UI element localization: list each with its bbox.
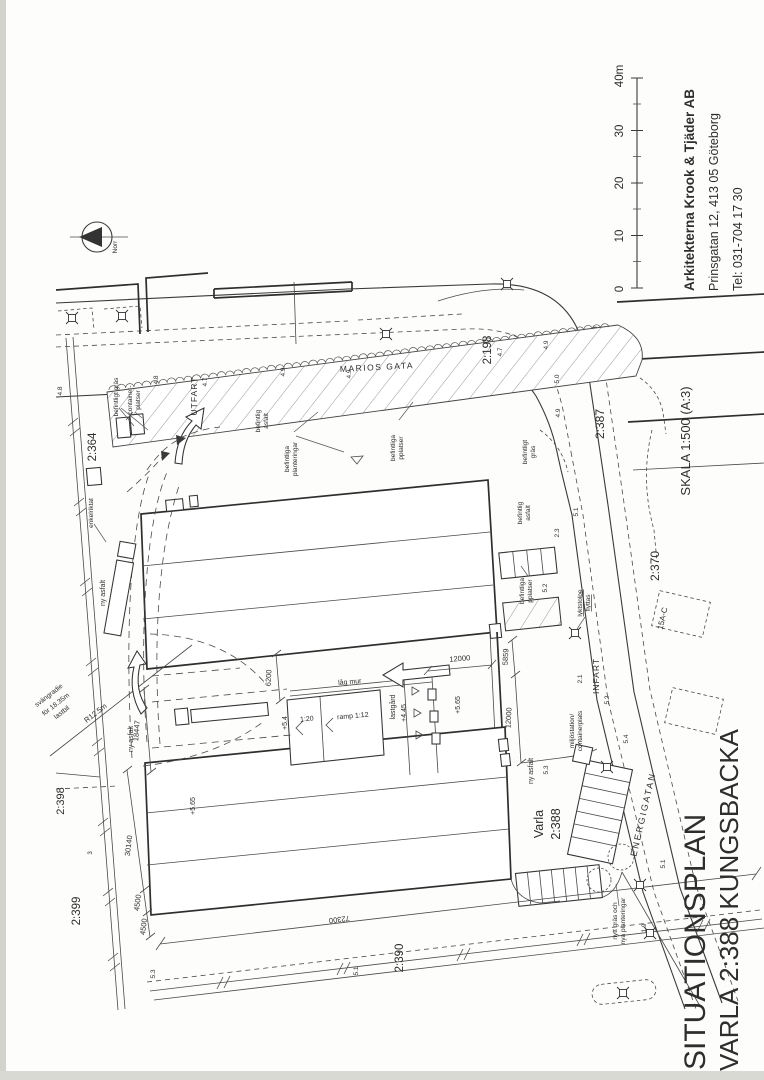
note-ny-asfalt-3: ny asfalt xyxy=(528,758,535,784)
note-befintligt-gras-2b: gräs xyxy=(530,445,537,458)
parcel-2370: 2:370 xyxy=(648,551,662,581)
ramp xyxy=(287,690,384,765)
note-container-2: platser xyxy=(135,389,142,409)
parcel-varla-1: Varla xyxy=(532,810,546,838)
spot-47a: 4.7 xyxy=(202,377,209,386)
level-565-b: +5.65 xyxy=(190,797,197,815)
spot-19: 1.9 xyxy=(641,923,648,932)
title-line2: VARLA 2:388 KUNGSBACKA xyxy=(714,728,744,1071)
spot-47b: 4.7 xyxy=(497,347,504,356)
firm-address: Prinsgatan 12, 413 05 Göteborg xyxy=(707,113,721,291)
spot-48b: 4.8 xyxy=(57,386,64,395)
parcel-2390: 2:390 xyxy=(394,944,406,973)
scalebar-20: 20 xyxy=(614,177,626,190)
site-plan-canvas: Arkitekterna Krook & Tjäder ABPrinsgatan… xyxy=(0,0,764,1080)
spot-21: 2.1 xyxy=(577,674,584,683)
note-slope-120: 1:20 xyxy=(300,715,314,723)
north-label: Norr xyxy=(112,240,119,253)
note-bef-plant-1a: befintliga xyxy=(284,446,291,472)
spot-51c: 5.1 xyxy=(660,859,667,868)
scalebar-0: 0 xyxy=(614,286,626,292)
note-bef-pplatser-2a: befintliga xyxy=(519,578,526,604)
dim-5859: 5859 xyxy=(501,648,511,665)
note-befintligt-gras-2a: befintligt xyxy=(522,440,529,464)
parcel-2399: 2:399 xyxy=(71,897,83,926)
note-miljostation-2: containerplats xyxy=(577,710,584,751)
parcel-2387: 2:387 xyxy=(593,409,607,439)
note-bef-pplatser-2b: pplatser xyxy=(527,579,534,603)
spot-53b: 5.3 xyxy=(150,969,157,978)
spot-51b: 5.1 xyxy=(353,966,360,975)
scalebar-10: 10 xyxy=(614,230,626,243)
note-bef-asfalt-2a: befintlig xyxy=(517,501,524,524)
parcel-2198: 2:198 xyxy=(482,336,494,365)
spot-52b: 5.2 xyxy=(604,695,611,704)
note-enkelriktat: enkelriktat xyxy=(88,498,95,528)
scalebar-30: 30 xyxy=(614,125,626,138)
spot-54: 5.4 xyxy=(623,734,630,743)
note-bef-pplatser-1b: pplatser xyxy=(398,436,405,460)
scan-edge-left xyxy=(0,0,6,1080)
note-nytt-gras-2: nya planteringar xyxy=(620,897,627,944)
spot-53a: 5.3 xyxy=(543,765,550,774)
note-bef-asfalt-1a: befintlig xyxy=(255,409,262,432)
level-54: +5.4 xyxy=(282,716,289,730)
note-lastgard: lastgård xyxy=(389,694,397,719)
label-utfart: UTFART xyxy=(189,377,199,416)
level-565-a: +5.65 xyxy=(455,696,462,714)
note-ny-asfalt-1: ny asfalt xyxy=(100,580,107,606)
note-bef-pplatser-1a: befintliga xyxy=(390,435,397,461)
parcel-2364: 2:364 xyxy=(87,432,99,461)
note-bef-asfalt-1b: asfalt xyxy=(263,413,270,429)
spot-50: 5.0 xyxy=(554,374,561,383)
spot-49c: 4.9 xyxy=(543,340,550,349)
note-nytt-gras-1: nytt gräs och xyxy=(612,902,619,940)
note-miljostation-1: miljöstation/ xyxy=(569,714,576,749)
parcel-2398: 2:398 xyxy=(55,787,67,815)
title-line1: SITUATIONSPLAN xyxy=(679,814,712,1070)
spot-49b: 4.9 xyxy=(346,369,353,378)
spot-52a: 5.2 xyxy=(542,583,549,592)
spot-51a: 5.1 xyxy=(573,507,580,516)
note-lyktstolpe-1: lyktstolpe xyxy=(577,589,584,616)
firm-phone: Tel: 031-704 17 30 xyxy=(731,187,745,291)
note-lyktstolpe-2: flyttas xyxy=(585,594,592,612)
scale-note: SKALA 1:500 (A:3) xyxy=(678,386,693,495)
note-befintligt-gras-1: befintligt gräs xyxy=(113,377,120,416)
dim-6200: 6200 xyxy=(264,669,274,686)
note-container-1: container- xyxy=(127,386,134,415)
scan-edge-bottom xyxy=(0,1071,764,1080)
dim-12000-h: 12000 xyxy=(449,653,471,664)
note-bef-plant-1b: planteringar xyxy=(292,441,299,476)
spot-49d: 4.9 xyxy=(555,408,562,417)
spot-23: 2.3 xyxy=(554,528,561,537)
firm-name: Arkitekterna Krook & Tjäder AB xyxy=(682,89,697,291)
spot-49a: 4.9 xyxy=(280,367,287,376)
note-bef-asfalt-2b: asfalt xyxy=(525,505,532,521)
scalebar-40: 40m xyxy=(614,65,626,87)
label-infart: INFART xyxy=(591,658,601,694)
dim-18447: 18447 xyxy=(131,720,142,742)
level-445: +4.45 xyxy=(401,704,408,722)
parcel-varla-2: 2:388 xyxy=(549,808,563,839)
dim-12000-v: 12000 xyxy=(503,707,513,728)
spot-48a: 4.8 xyxy=(153,375,160,384)
